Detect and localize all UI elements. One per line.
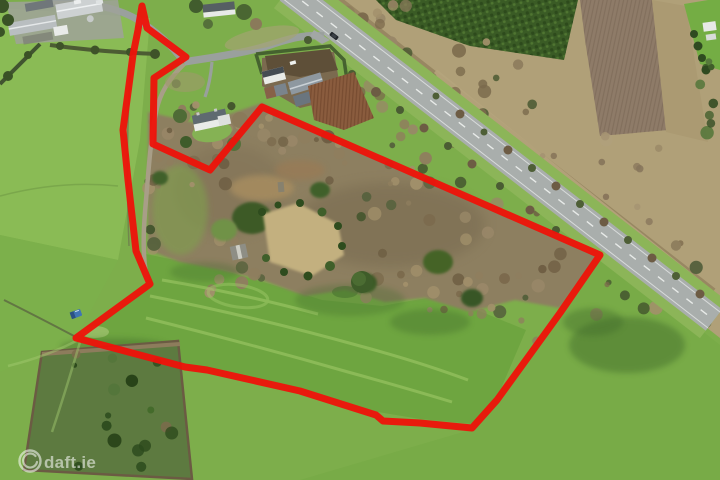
tree-canopy — [515, 273, 521, 279]
tree-canopy — [477, 309, 487, 319]
tree-canopy — [267, 137, 276, 146]
tree-canopy — [165, 427, 178, 440]
aerial-photo: daft.ie — [0, 0, 720, 480]
tree-canopy — [397, 271, 405, 279]
tree-canopy — [452, 44, 466, 58]
bare-slope-2 — [275, 160, 325, 180]
tree-canopy — [523, 109, 530, 116]
tree-canopy — [646, 218, 653, 225]
tree-canopy — [167, 159, 174, 166]
tree-canopy — [136, 462, 146, 472]
tree-canopy — [638, 302, 650, 314]
tree-canopy — [406, 200, 411, 205]
tree-canopy — [522, 295, 528, 301]
tree-canopy — [342, 160, 348, 166]
aerial-photo-canvas: daft.ie — [0, 0, 720, 480]
tree-canopy — [400, 0, 412, 12]
tree-canopy — [219, 177, 232, 190]
tree-canopy — [189, 182, 194, 187]
tree-canopy — [695, 80, 705, 90]
tree-canopy — [706, 58, 713, 65]
tree-canopy — [126, 375, 138, 387]
tree-canopy — [603, 194, 609, 200]
tree-canopy — [551, 153, 557, 159]
tree-canopy — [478, 85, 491, 98]
tree-canopy — [102, 421, 112, 431]
tree-canopy — [423, 214, 435, 226]
tree-canopy — [636, 165, 643, 172]
junction-bank — [165, 72, 205, 92]
tree-canopy — [278, 147, 286, 155]
tree-canopy — [403, 282, 408, 287]
tree-canopy — [599, 159, 606, 166]
tree-canopy — [147, 407, 154, 414]
tree-canopy — [671, 240, 681, 250]
tree-canopy — [532, 279, 545, 292]
tree-canopy — [690, 261, 703, 274]
tree-canopy — [325, 176, 333, 184]
tree-canopy — [634, 204, 640, 210]
tree-canopy — [482, 227, 494, 239]
tree-canopy — [452, 273, 464, 285]
tree-canopy — [373, 8, 382, 17]
tree-canopy — [411, 265, 423, 277]
tree-canopy — [620, 290, 630, 300]
tree-canopy — [460, 212, 471, 223]
tree-canopy — [460, 233, 472, 245]
tree-canopy — [375, 19, 385, 29]
tree-canopy — [389, 0, 397, 8]
tree-canopy — [265, 114, 273, 122]
ruin-tower — [278, 182, 285, 192]
tree-canopy — [455, 177, 466, 188]
tree-canopy — [408, 124, 418, 134]
tree-canopy — [709, 99, 719, 109]
tree-canopy — [548, 260, 561, 273]
tree-canopy — [499, 273, 510, 284]
tree-canopy — [456, 67, 466, 77]
tree-canopy — [334, 148, 345, 159]
round-scrub-tree-highlight — [352, 272, 366, 286]
tree-canopy — [154, 154, 163, 163]
bare-slope — [230, 175, 294, 201]
watermark-text: daft.ie — [44, 453, 96, 472]
tree-canopy — [399, 119, 409, 129]
tree-canopy — [488, 304, 496, 312]
tree-canopy — [386, 200, 396, 210]
tree-canopy — [376, 101, 388, 113]
tree-canopy — [108, 384, 120, 396]
tree-canopy — [655, 145, 662, 152]
tree-canopy — [378, 249, 387, 258]
tree-canopy — [357, 212, 366, 221]
tree-canopy — [604, 282, 609, 287]
tree-canopy — [427, 286, 440, 299]
tree-canopy — [527, 100, 537, 110]
tree-canopy — [248, 268, 261, 281]
white-shed — [703, 21, 717, 32]
tree-canopy — [108, 434, 122, 448]
tree-canopy — [259, 124, 264, 129]
tree-canopy — [475, 272, 483, 280]
tree-canopy — [388, 181, 393, 186]
tree-canopy — [147, 237, 161, 251]
tree-canopy — [463, 277, 473, 287]
tree-canopy — [518, 317, 524, 323]
tree-canopy — [227, 102, 235, 110]
tree-canopy — [314, 137, 319, 142]
tree-canopy — [705, 111, 714, 120]
tree-canopy — [362, 192, 372, 202]
tree-canopy — [483, 38, 491, 46]
tree-canopy — [389, 142, 395, 148]
tree-canopy — [192, 101, 200, 109]
tree-canopy — [108, 354, 117, 363]
tree-canopy — [601, 132, 610, 141]
tree-canopy — [396, 132, 406, 142]
tree-canopy — [468, 311, 473, 316]
tree-canopy — [167, 128, 173, 134]
tree-canopy — [278, 137, 288, 147]
tree-canopy — [513, 59, 523, 69]
tree-canopy — [538, 265, 546, 273]
tree-canopy — [368, 207, 382, 221]
tree-canopy — [139, 440, 151, 452]
tree-canopy — [146, 225, 156, 235]
tree-canopy — [700, 126, 713, 139]
tree-canopy — [707, 119, 716, 128]
tree-canopy — [419, 152, 432, 165]
tree-canopy — [105, 412, 111, 418]
tree-canopy — [298, 130, 311, 143]
tree-canopy — [493, 75, 500, 82]
tree-canopy — [554, 248, 567, 261]
